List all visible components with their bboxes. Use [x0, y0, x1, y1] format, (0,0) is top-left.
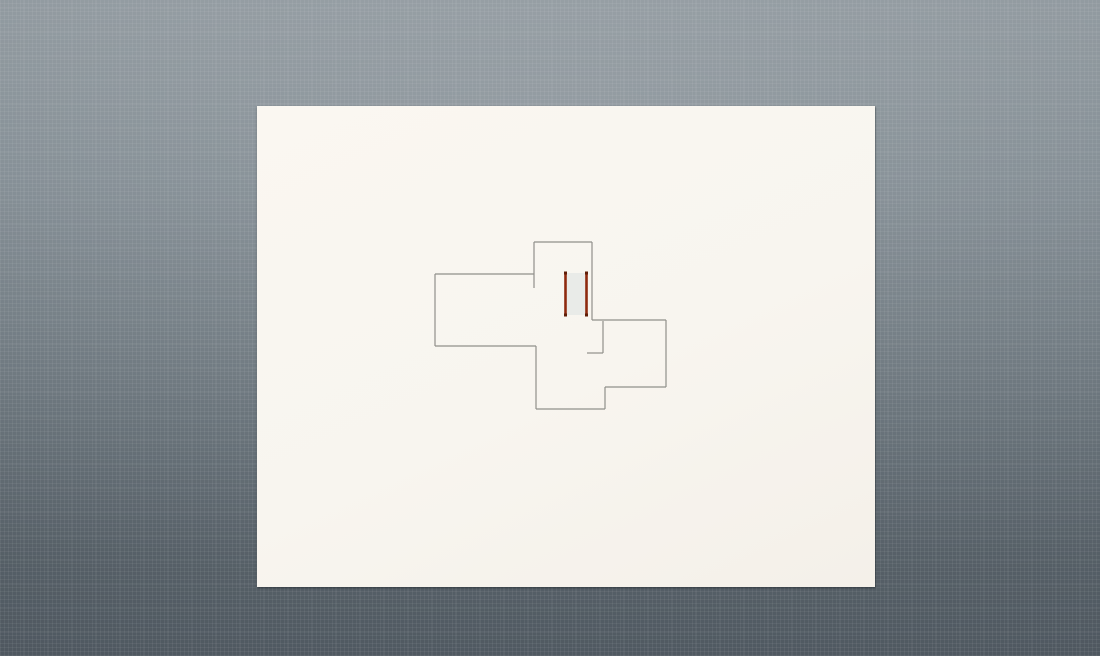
floor-plan[interactable]	[0, 0, 1100, 656]
selected-wall-fill-rect	[567, 273, 586, 315]
app-viewport	[0, 0, 1100, 656]
wall-endpoint-handle[interactable]	[564, 314, 567, 317]
selected-wall-fill	[567, 273, 586, 315]
wall-endpoint-handle[interactable]	[585, 314, 588, 317]
wall-lines[interactable]	[435, 242, 666, 409]
wall-endpoint-handle[interactable]	[585, 272, 588, 275]
wall-endpoint-handle[interactable]	[564, 272, 567, 275]
